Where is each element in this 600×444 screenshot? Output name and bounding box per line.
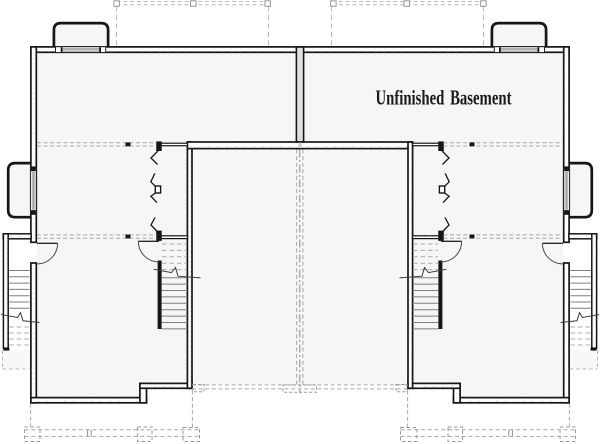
svg-text:Unfinished Basement: Unfinished Basement: [376, 85, 512, 109]
